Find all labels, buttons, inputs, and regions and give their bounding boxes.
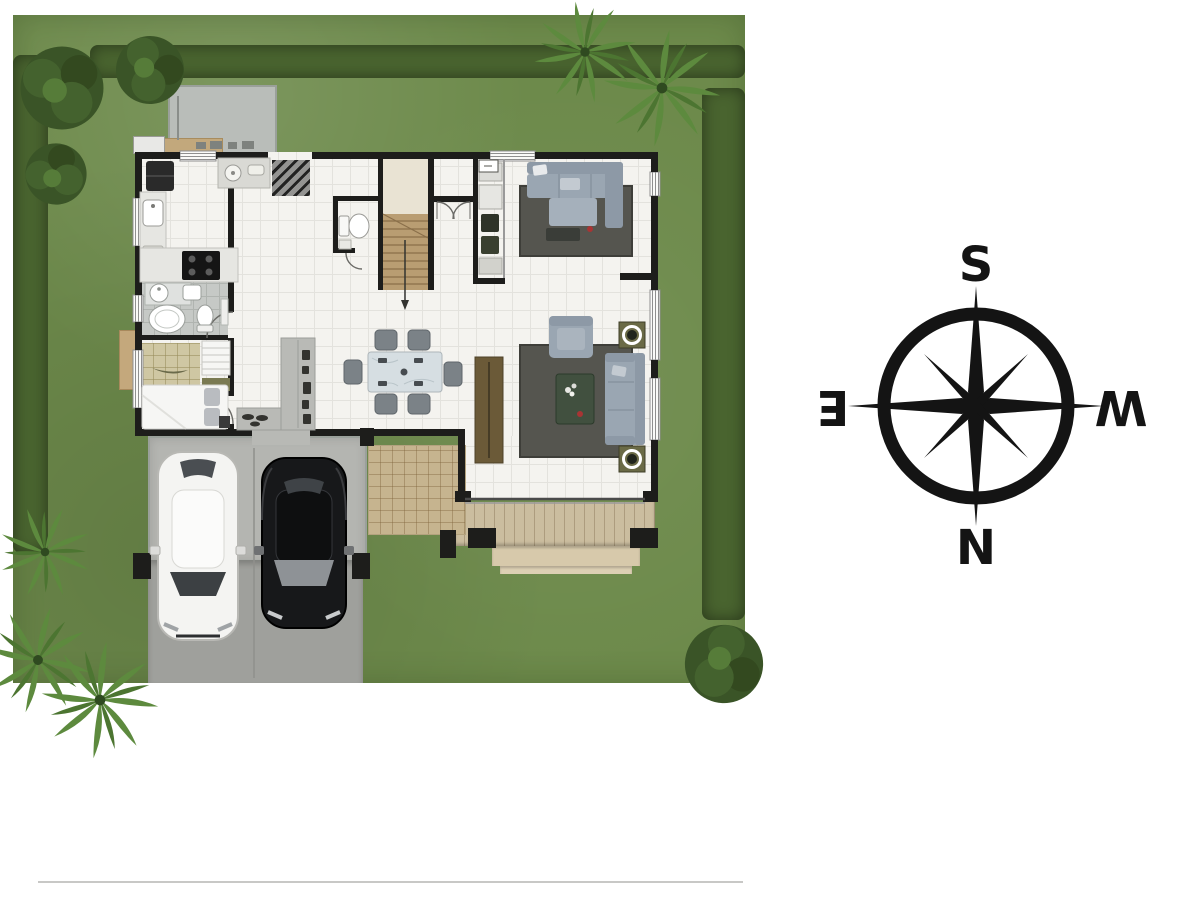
bed-footboard-item xyxy=(219,416,230,428)
service-items xyxy=(178,96,254,149)
garage-door-step xyxy=(252,429,310,445)
family-room xyxy=(520,162,632,256)
wc xyxy=(339,214,369,249)
plant-pot-shelf-1 xyxy=(481,214,499,232)
toilet xyxy=(349,214,369,238)
ladder-shelf xyxy=(202,341,230,375)
black-car xyxy=(254,458,354,628)
living-room xyxy=(475,316,645,472)
plan-overlay: S N E W xyxy=(0,0,1200,900)
compass-label-right: W xyxy=(1095,379,1148,435)
black-car-windshield xyxy=(274,560,334,586)
compass-rose: S N E W xyxy=(817,237,1148,576)
plant-pot-shelf-2 xyxy=(481,236,499,254)
compass-label-left: E xyxy=(817,379,850,435)
bathroom xyxy=(145,283,228,333)
sofa xyxy=(605,353,645,445)
site-plan-canvas: S N E W xyxy=(0,0,1200,900)
kitchen xyxy=(140,158,270,282)
dining-area xyxy=(344,330,462,414)
compass-label-top: S xyxy=(959,237,994,293)
storage-shelf xyxy=(479,160,502,274)
white-car xyxy=(150,452,246,640)
staircase xyxy=(383,159,428,310)
pillow-2 xyxy=(204,408,220,426)
compass-label-bottom: N xyxy=(956,520,996,576)
family-coffee-table xyxy=(546,228,580,241)
cooktop xyxy=(182,251,220,280)
bathtub xyxy=(149,305,185,333)
bed xyxy=(142,385,230,429)
armchair xyxy=(549,316,593,358)
hall-console xyxy=(237,338,315,430)
sliding-door xyxy=(465,499,645,503)
coffee-table xyxy=(556,374,594,424)
kitchen-sink xyxy=(143,200,163,226)
bathroom-toilet xyxy=(197,305,213,332)
bedroom xyxy=(142,341,230,429)
red-accent-family xyxy=(587,226,593,232)
branch-decor xyxy=(152,368,188,374)
red-accent-living xyxy=(577,411,583,417)
pillow-1 xyxy=(204,388,220,406)
compass-star xyxy=(848,286,1104,526)
